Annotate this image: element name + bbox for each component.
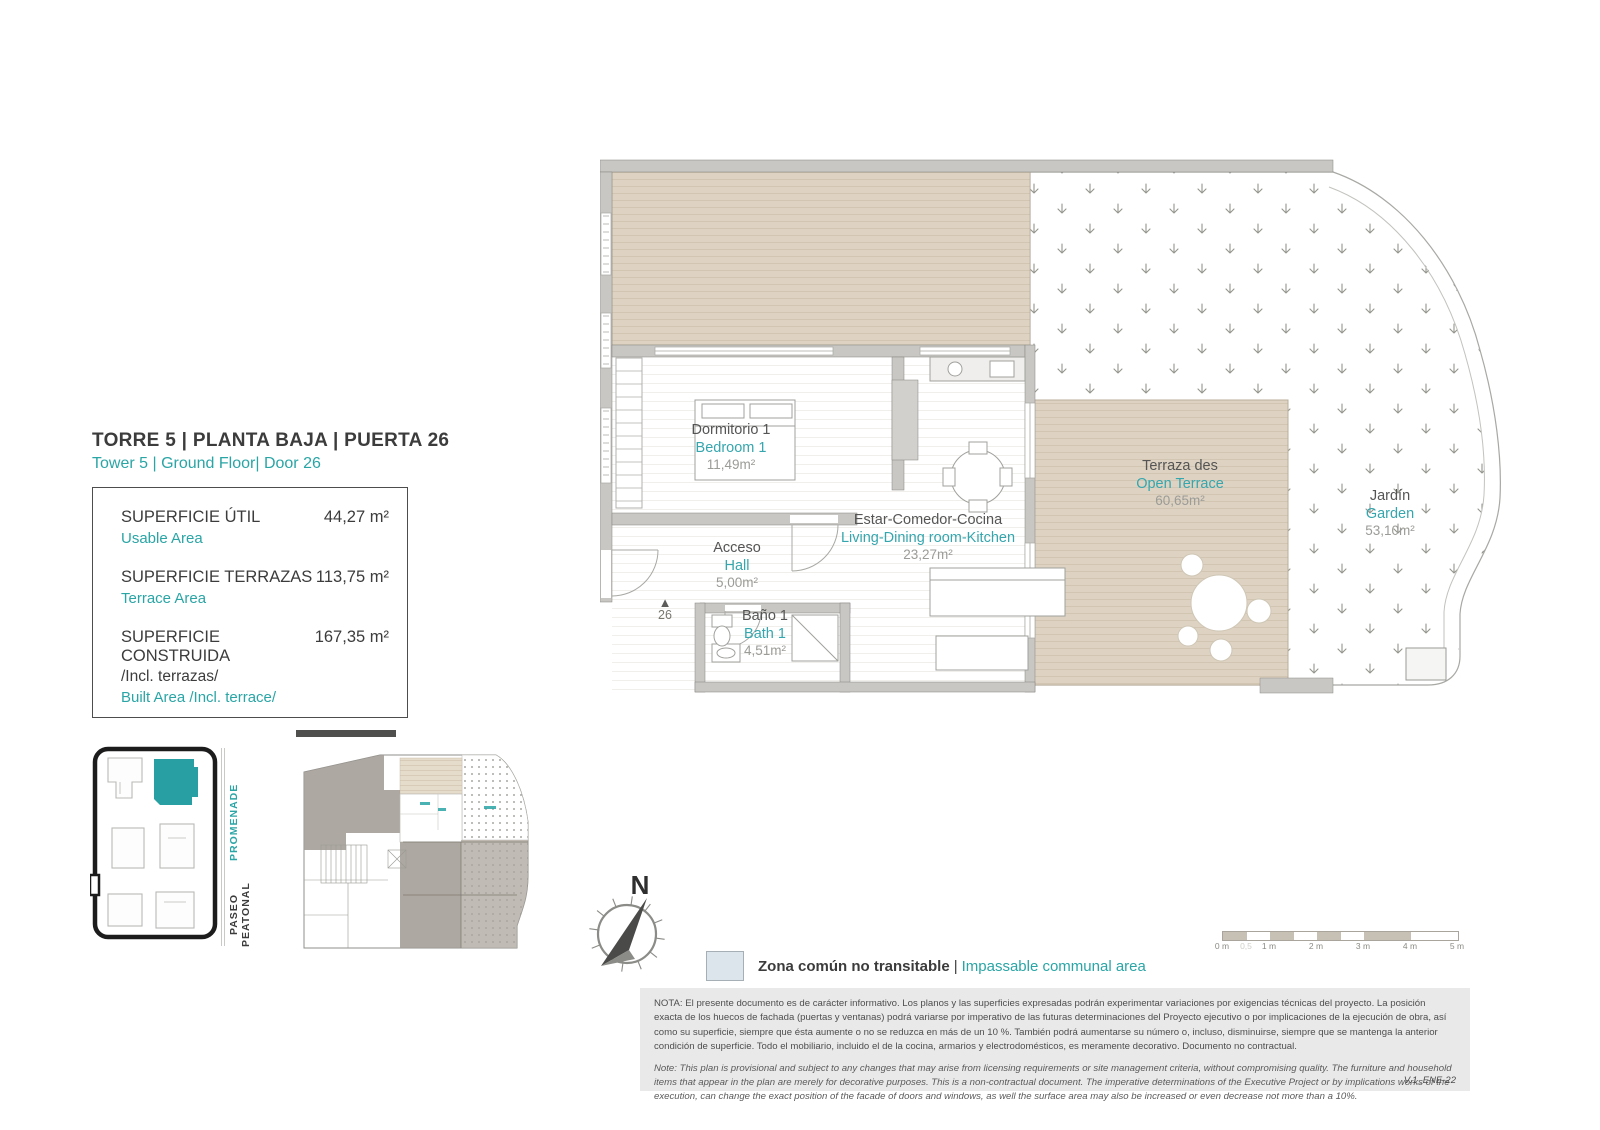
area-label-en: Usable Area [121,530,389,547]
street-label-promenade: PROMENADE [228,772,248,872]
entrance-marker-icon: ▲ [652,598,678,608]
legend-separator: | [950,958,962,975]
room-label-hall: Acceso Hall 5,00m² [677,540,797,592]
scale-label-5: 5 m [1445,941,1469,951]
legend-swatch [706,951,744,981]
garden-utility-box [1406,648,1446,680]
area-label-es: SUPERFICIE CONSTRUIDA [121,628,315,666]
area-label-es: SUPERFICIE TERRAZAS [121,568,312,587]
area-label-es-extra: /Incl. terrazas/ [121,668,389,686]
key-plan-mini [288,730,538,955]
area-value: 167,35 m² [315,628,389,647]
area-row-built: SUPERFICIE CONSTRUIDA 167,35 m² /Incl. t… [121,628,389,706]
highlighted-tower [154,759,198,805]
scale-label-1: 1 m [1257,941,1281,951]
garden-wall-block [1260,678,1333,693]
notes-box: NOTA: El presente documento es de caráct… [640,988,1470,1091]
version-label: V.1_ENE-22 [1404,1075,1456,1086]
street-label-paseo: PASEO PEATONAL [228,862,248,967]
area-label-en: Terrace Area [121,590,389,607]
room-label-bath: Baño 1 Bath 1 4,51m² [705,608,825,660]
area-label-en: Built Area /Incl. terrace/ [121,689,389,706]
scale-label-2: 2 m [1304,941,1328,951]
area-label-es: SUPERFICIE ÚTIL [121,508,260,527]
floor-plan-sheet: TORRE 5 | PLANTA BAJA | PUERTA 26 Tower … [0,0,1600,1130]
page-title: TORRE 5 | PLANTA BAJA | PUERTA 26 [92,430,449,452]
area-value: 113,75 m² [316,568,389,587]
room-label-garden: Jardín Garden 53,10m² [1310,488,1470,540]
compass: N [585,862,680,972]
legend-text: Zona común no transitable|Impassable com… [758,958,1146,975]
open-terrace-deck [1032,400,1288,685]
entrance-marker: ▲ 26 [652,598,678,622]
room-label-living: Estar-Comedor-Cocina Living-Dining room-… [798,512,1058,564]
upper-terrace-deck [612,172,1030,345]
room-label-bedroom: Dormitorio 1 Bedroom 1 11,49m² [631,422,831,474]
note-spanish: NOTA: El presente documento es de caráct… [654,997,1456,1055]
note-english: Note: This plan is provisional and subje… [654,1062,1456,1105]
scale-label-0: 0 m [1210,941,1234,951]
area-row-usable: SUPERFICIE ÚTIL 44,27 m² Usable Area [121,508,389,547]
site-plan-mini [90,742,225,947]
scale-label-3: 3 m [1351,941,1375,951]
room-label-terrace: Terraza des Open Terrace 60,65m² [1080,458,1280,510]
legend-label-en: Impassable communal area [962,958,1146,975]
scale-bar [1222,931,1459,941]
compass-north-label: N [631,870,650,900]
area-row-terrace: SUPERFICIE TERRAZAS 113,75 m² Terrace Ar… [121,568,389,607]
promenade-line [221,748,222,946]
promenade-line [224,748,225,946]
area-summary-box: SUPERFICIE ÚTIL 44,27 m² Usable Area SUP… [92,487,408,718]
entrance-door-number: 26 [652,608,678,622]
page-subtitle: Tower 5 | Ground Floor| Door 26 [92,455,321,473]
scale-label-half: 0,5 [1236,941,1256,951]
legend-label-es: Zona común no transitable [758,958,950,975]
scale-label-4: 4 m [1398,941,1422,951]
area-value: 44,27 m² [324,508,389,527]
